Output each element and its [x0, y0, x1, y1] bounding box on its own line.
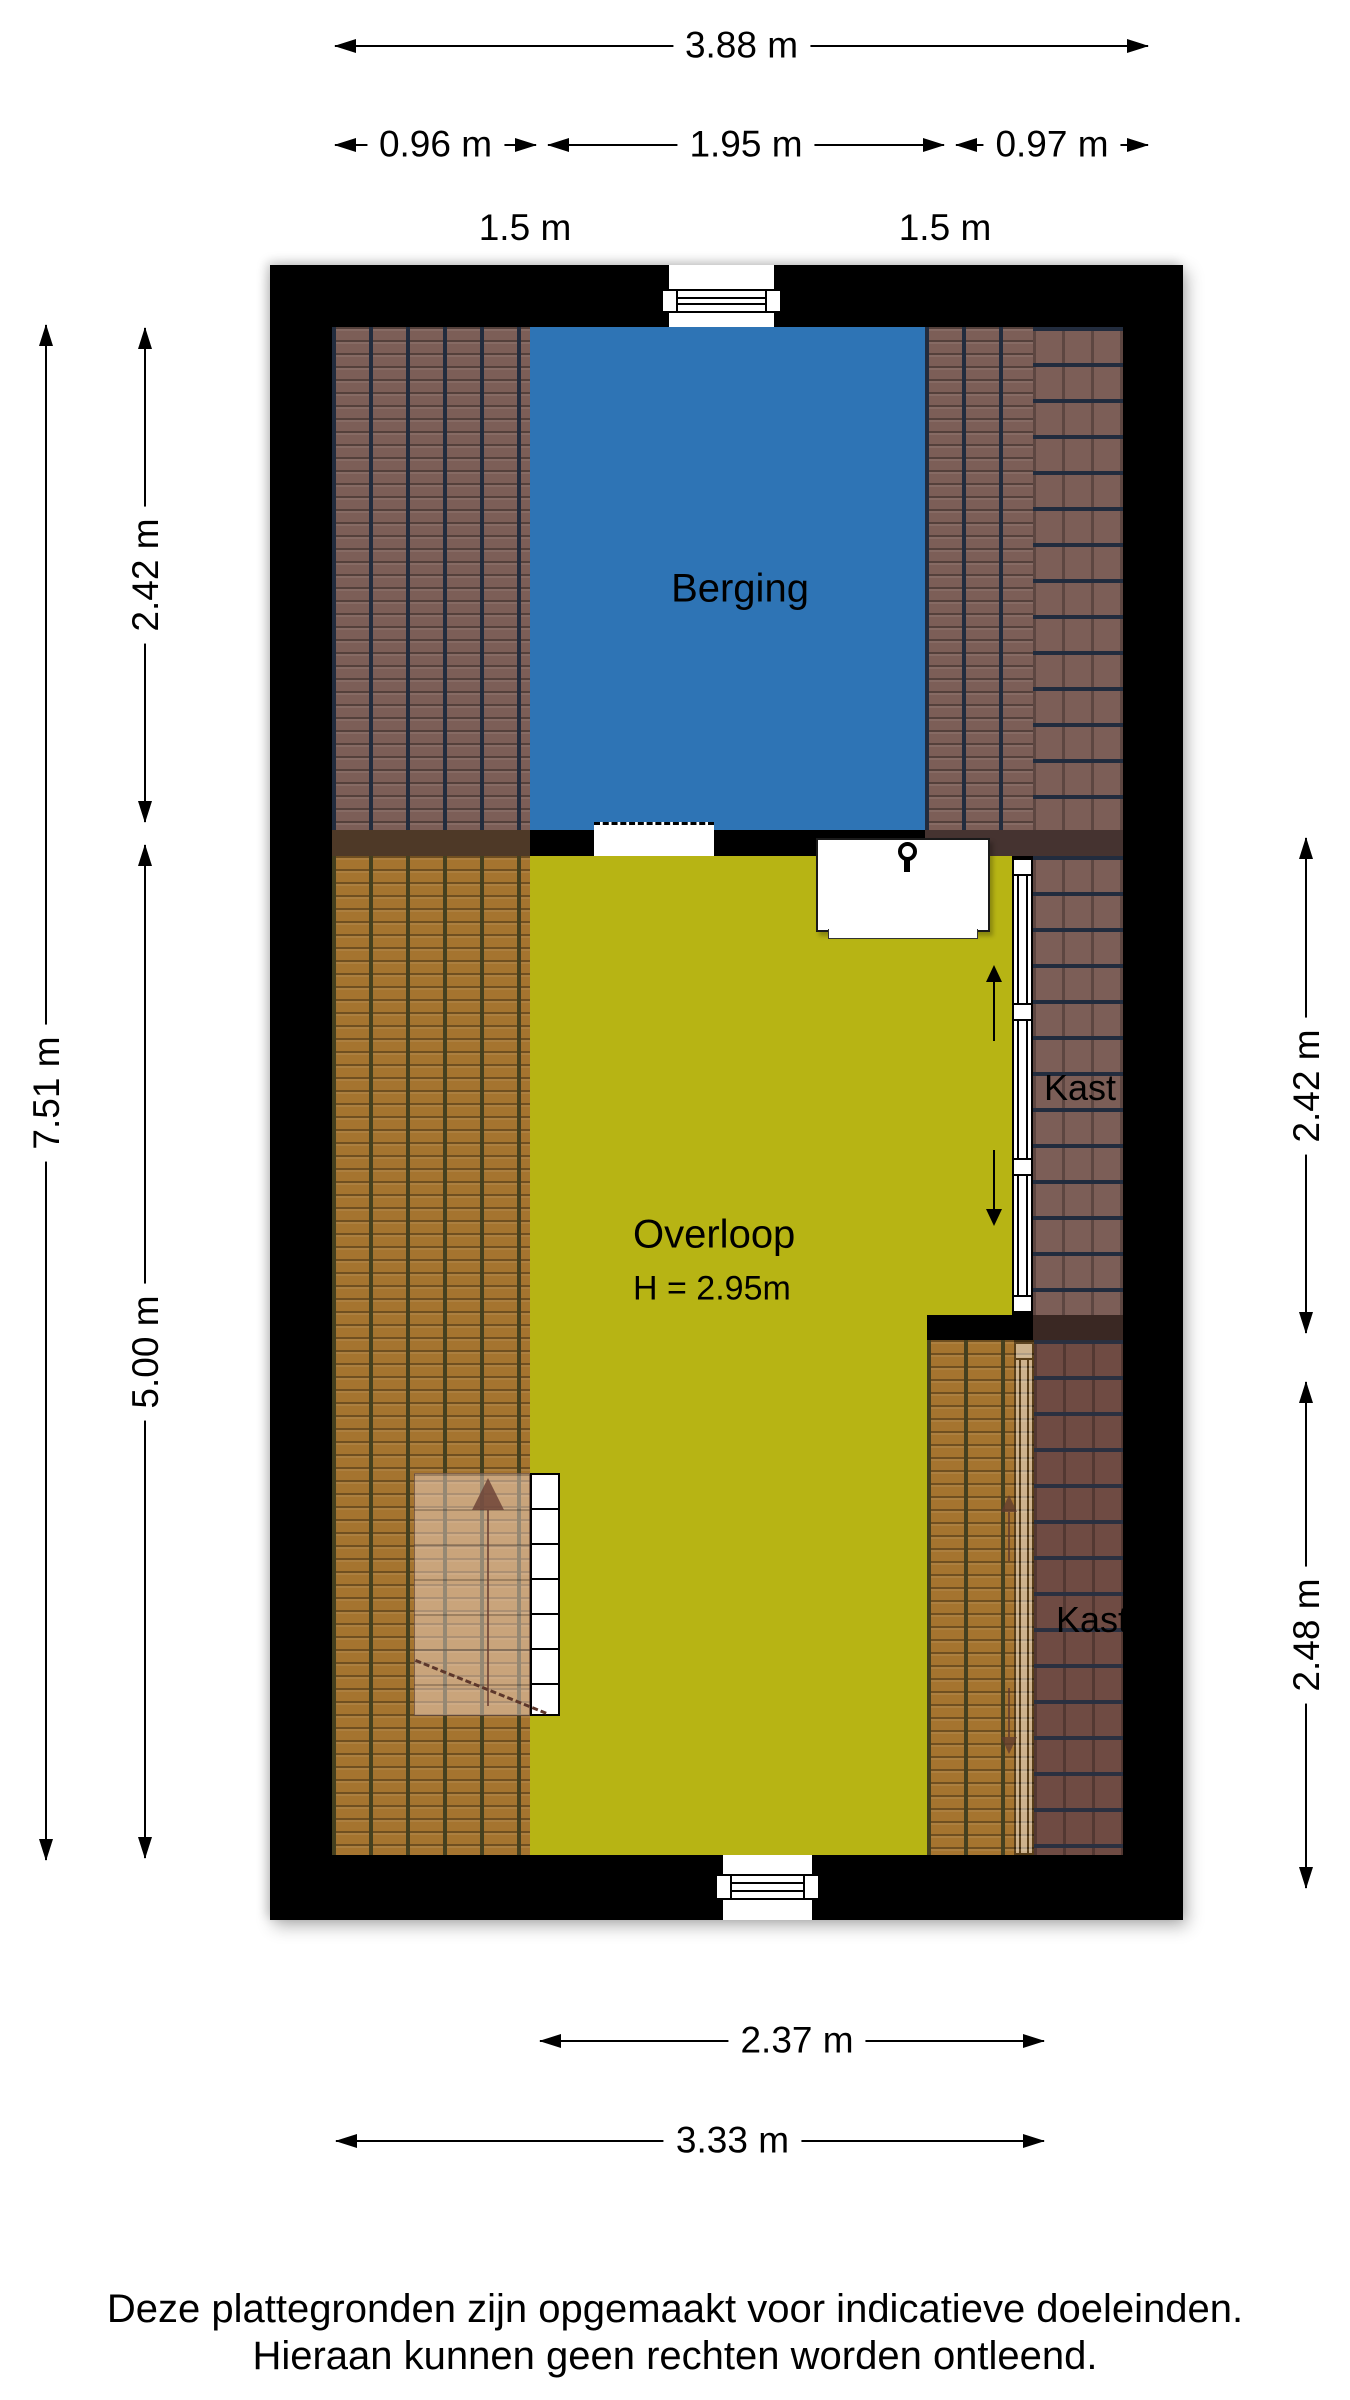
- dim-top-right-label: 0.97 m: [983, 123, 1120, 165]
- slide-direction-up-icon: [1001, 1495, 1017, 1561]
- dim-bottom-inner-label: 2.37 m: [728, 2019, 865, 2061]
- overloop-height-label: H = 2.95m: [633, 1270, 791, 1309]
- dim-top-middle-label: 1.95 m: [677, 123, 814, 165]
- kast-lower-roof-slope-outer: [1034, 1340, 1123, 1855]
- dim-top-right: 0.97 m: [956, 144, 1148, 146]
- disclaimer: Deze plattegronden zijn opgemaakt voor i…: [0, 2286, 1350, 2380]
- kast-upper-sliding-door: [1012, 856, 1033, 1315]
- closet-divider-wall-end: [1012, 1315, 1033, 1340]
- stairs-up-arrow-icon: [472, 1478, 504, 1706]
- dim-left-upper: 2.42 m: [144, 328, 146, 822]
- kast-upper-label: Kast: [1044, 1067, 1116, 1109]
- window-top-frame: [661, 289, 782, 313]
- internal-wall-under-tiles-left: [332, 830, 530, 856]
- slide-direction-down-icon: [986, 1150, 1002, 1226]
- window-bottom-frame: [715, 1874, 820, 1900]
- kast-lower-label: Kast: [1056, 1599, 1128, 1641]
- staircase: [414, 1473, 560, 1716]
- dim-left-lower-label: 5.00 m: [125, 1283, 167, 1420]
- dim-bottom-inner: 2.37 m: [540, 2040, 1044, 2042]
- dim-right-lower: 2.48 m: [1305, 1382, 1307, 1888]
- cabinet-lid: [828, 929, 978, 939]
- dim-left-total-label: 7.51 m: [26, 1024, 68, 1161]
- roof-slope-upper-left: [332, 327, 530, 830]
- room-overloop: [530, 856, 927, 1855]
- floorplan: Kast Kast: [270, 265, 1183, 1920]
- slide-direction-up-icon: [986, 965, 1002, 1041]
- dim-left-lower: 5.00 m: [144, 845, 146, 1858]
- floorplan-page: 3.88 m 0.96 m 1.95 m 0.97 m 1.5 m 1.5 m …: [0, 0, 1350, 2400]
- overloop-label: Overloop: [633, 1213, 795, 1258]
- dim-bottom-total-label: 3.33 m: [664, 2119, 801, 2161]
- kast-lower-sliding-door: [1014, 1340, 1034, 1855]
- berging-label: Berging: [671, 567, 809, 612]
- dim-left-total: 7.51 m: [45, 325, 47, 1860]
- headroom-label-left: 1.5 m: [479, 207, 572, 249]
- dim-top-left-label: 0.96 m: [367, 123, 504, 165]
- disclaimer-line2: Hieraan kunnen geen rechten worden ontle…: [0, 2333, 1350, 2380]
- staircase-treads: [530, 1473, 560, 1716]
- dim-top-total-label: 3.88 m: [673, 24, 810, 66]
- dim-right-upper-label: 2.42 m: [1286, 1017, 1328, 1154]
- roof-slope-upper-right-inner: [925, 327, 1033, 830]
- dim-top-total: 3.88 m: [335, 45, 1148, 47]
- cabinet: [816, 838, 990, 932]
- headroom-label-right: 1.5 m: [899, 207, 992, 249]
- disclaimer-line1: Deze plattegronden zijn opgemaakt voor i…: [0, 2286, 1350, 2333]
- dim-right-lower-label: 2.48 m: [1286, 1566, 1328, 1703]
- door-knob-stem-icon: [904, 857, 910, 872]
- dim-top-left: 0.96 m: [335, 144, 536, 146]
- dim-bottom-total: 3.33 m: [336, 2140, 1044, 2142]
- dim-right-upper: 2.42 m: [1305, 838, 1307, 1333]
- dim-top-middle: 1.95 m: [548, 144, 944, 146]
- dim-left-upper-label: 2.42 m: [125, 506, 167, 643]
- roof-slope-upper-right-outer: [1033, 327, 1123, 830]
- slide-direction-down-icon: [1001, 1688, 1017, 1754]
